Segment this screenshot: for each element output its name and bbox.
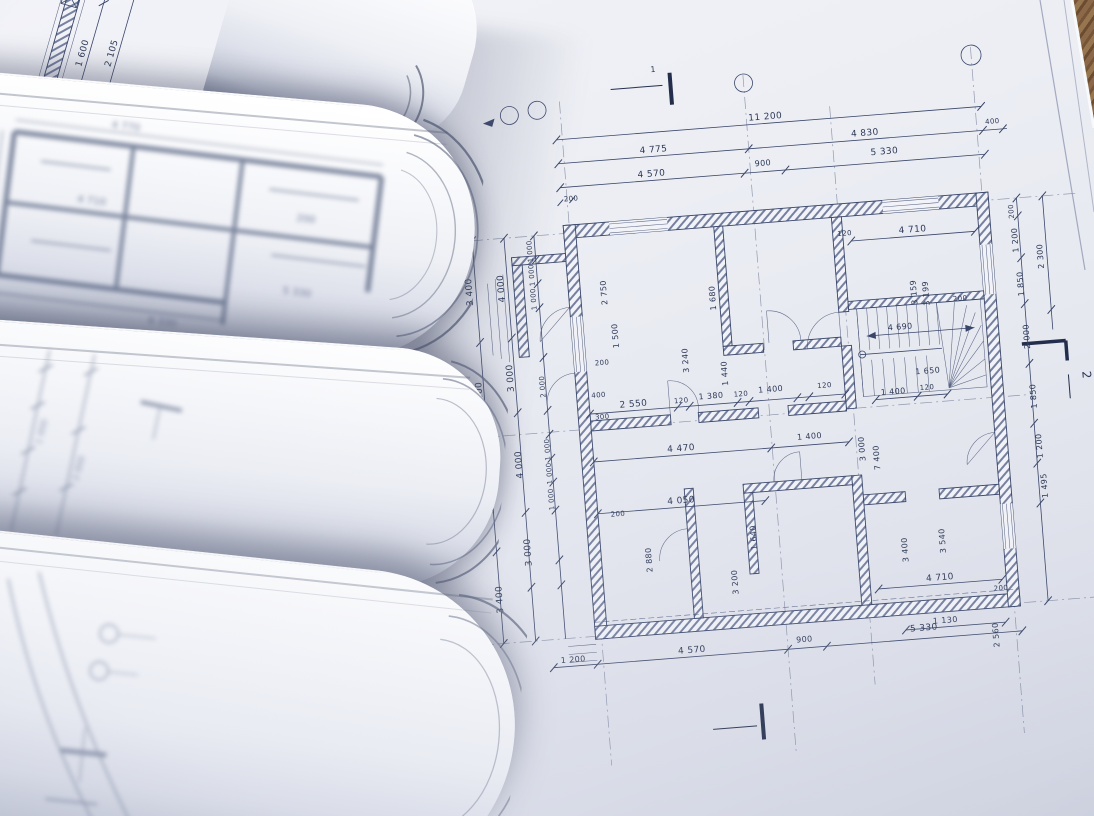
photo-blueprints-scene: 1 2: [0, 0, 1094, 816]
dim-label: 3 000: [71, 454, 88, 482]
dim-label: 4 710: [77, 194, 107, 208]
roll-printed-chain-blurred: 1 000 3 000: [0, 336, 247, 564]
blueprint-roll-1: 4 710 200 4 770 8 330 5 330: [0, 70, 485, 368]
dim-label: 8 330: [147, 316, 177, 330]
roll-end-curl: [371, 581, 532, 816]
dim-label: 1 000: [34, 418, 51, 446]
roll-end-curl: [385, 350, 511, 595]
roll-printed-marks-blurred: [0, 556, 319, 816]
roll-end-curl: [348, 109, 489, 365]
dim-label: 200: [296, 213, 316, 226]
dim-label: 5 330: [282, 286, 312, 300]
